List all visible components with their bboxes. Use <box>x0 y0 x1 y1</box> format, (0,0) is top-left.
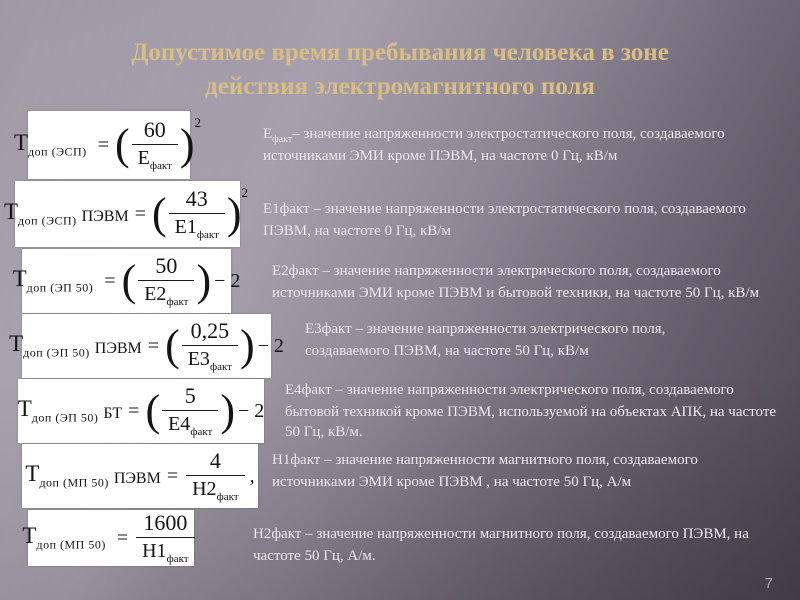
description-text: – значение напряженности электрического … <box>285 382 776 440</box>
description-e2-fact: Е2факт – значение напряженности электрич… <box>272 261 780 303</box>
formula-tail: − 2 <box>214 270 240 293</box>
description-term-subscript: факт <box>272 134 292 145</box>
formula-symbol: T <box>25 461 39 486</box>
denominator-subscript: факт <box>210 361 232 373</box>
fraction-denominator: Ефакт <box>132 144 178 173</box>
formula-suffix: ПЭВМ <box>82 208 129 225</box>
formula-lhs: Tдоп (ЭСП) <box>14 130 92 160</box>
fraction-denominator: Е2факт <box>138 280 194 309</box>
formula-subscript: доп (ЭП 50) <box>23 346 90 360</box>
fraction: 43 Е1факт <box>169 187 225 242</box>
description-e-fact: Ефакт– значение напряженности электроста… <box>263 124 768 166</box>
formula-box-ep50: Tдоп (ЭП 50) = ( 50 Е2факт ) − 2 <box>22 249 231 313</box>
description-term: Е3факт <box>305 321 352 337</box>
formula-lhs: Tдоп (ЭП 50)ПЭВМ <box>9 331 142 361</box>
formula-box-esp: Tдоп (ЭСП) = ( 60 Ефакт ) 2 <box>28 111 190 179</box>
formula-symbol: T <box>18 396 32 421</box>
formula-suffix: ПЭВМ <box>95 340 142 357</box>
formula-tail: , <box>250 465 255 488</box>
formula-subscript: доп (ЭП 50) <box>32 411 99 425</box>
description-text: – значение напряженности электрического … <box>305 321 665 359</box>
formula-lhs: Tдоп (ЭП 50)БТ <box>18 396 122 426</box>
left-paren: ( <box>165 326 180 366</box>
fraction-denominator: Е1факт <box>169 213 225 242</box>
left-paren: ( <box>152 194 167 234</box>
fraction-numerator: 0,25 <box>185 319 236 345</box>
denominator-subscript: факт <box>166 296 188 308</box>
fraction: 60 Ефакт <box>132 118 178 173</box>
formula-subscript: доп (ЭП 50) <box>27 281 94 295</box>
description-term: Е2факт <box>272 263 319 279</box>
description-term: Н1факт <box>272 452 320 468</box>
description-text: – значение напряженности электрического … <box>272 263 759 301</box>
formula-box-ep50-pevm: Tдоп (ЭП 50)ПЭВМ = ( 0,25 Е3факт ) − 2 <box>22 314 271 378</box>
denominator-symbol: Е1 <box>175 216 197 238</box>
left-paren: ( <box>145 391 160 431</box>
slide-title-line-1: Допустимое время пребывания человека в з… <box>20 36 780 70</box>
description-e1-fact: Е1факт – значение напряженности электрос… <box>263 199 778 241</box>
formula-box-mp50-pevm: Tдоп (МП 50)ПЭВМ = 4 Н2факт , <box>22 444 258 508</box>
denominator-subscript: факт <box>217 491 239 503</box>
fraction-numerator: 60 <box>138 118 172 144</box>
denominator-subscript: факт <box>150 160 172 172</box>
description-text: – значение напряженности электростатичес… <box>263 201 746 239</box>
right-paren: ) <box>240 326 255 366</box>
right-paren: ) <box>227 194 242 234</box>
equals-sign: = <box>135 203 146 226</box>
denominator-symbol: Н1 <box>142 540 166 562</box>
slide-title-line-2: действия электромагнитного поля <box>20 70 780 104</box>
denominator-symbol: Н2 <box>192 478 216 500</box>
fraction-denominator: Н1факт <box>136 537 194 566</box>
fraction: 1600 Н1факт <box>136 511 194 566</box>
formula-subscript: доп (МП 50) <box>36 538 105 552</box>
equals-sign: = <box>148 335 159 358</box>
equals-sign: = <box>128 400 139 423</box>
denominator-symbol: Е <box>138 147 150 169</box>
formula-lhs: Tдоп (ЭСП)ПЭВМ <box>4 199 129 229</box>
formula-suffix: БТ <box>103 405 122 422</box>
fraction-numerator: 1600 <box>137 511 193 537</box>
fraction-denominator: Е4факт <box>162 410 218 439</box>
formula-symbol: T <box>14 130 28 155</box>
formula-subscript: доп (МП 50) <box>39 476 108 490</box>
right-paren: ) <box>220 391 235 431</box>
exponent: 2 <box>242 185 249 201</box>
fraction-numerator: 4 <box>204 449 227 475</box>
page-number: 7 <box>765 575 773 592</box>
description-term: Е4факт <box>285 382 332 398</box>
formula-tail: − 2 <box>258 335 284 358</box>
left-paren: ( <box>115 125 130 165</box>
formula-box-esp-pevm: Tдоп (ЭСП)ПЭВМ = ( 43 Е1факт ) 2 <box>15 181 240 247</box>
fraction: 0,25 Е3факт <box>182 319 238 374</box>
slide-title: Допустимое время пребывания человека в з… <box>20 36 780 103</box>
formula-suffix: ПЭВМ <box>114 470 161 487</box>
description-text: – значение напряженности магнитного поля… <box>253 526 749 564</box>
fraction-numerator: 43 <box>180 187 214 213</box>
denominator-subscript: факт <box>167 553 189 565</box>
denominator-subscript: факт <box>190 426 212 438</box>
exponent: 2 <box>195 115 202 131</box>
denominator-symbol: Е4 <box>168 413 190 435</box>
description-term: Е1факт <box>263 201 310 217</box>
fraction-denominator: Н2факт <box>186 475 244 504</box>
description-term: Н2факт <box>253 526 301 542</box>
left-paren: ( <box>122 261 137 301</box>
fraction: 4 Н2факт <box>186 449 244 504</box>
denominator-symbol: Е3 <box>188 348 210 370</box>
presentation-slide: Допустимое время пребывания человека в з… <box>0 0 800 600</box>
equals-sign: = <box>167 465 178 488</box>
formula-box-ep50-bt: Tдоп (ЭП 50)БТ = ( 5 Е4факт ) − 2 <box>18 379 264 443</box>
formula-lhs: Tдоп (МП 50)ПЭВМ <box>25 461 160 491</box>
description-term: Е <box>263 126 272 142</box>
formula-symbol: T <box>22 523 36 548</box>
formula-tail: − 2 <box>238 400 264 423</box>
description-text: – значение напряженности электростатичес… <box>263 126 725 164</box>
denominator-symbol: Е2 <box>144 283 166 305</box>
formula-symbol: T <box>9 331 23 356</box>
description-h1-fact: Н1факт – значение напряженности магнитно… <box>272 450 742 492</box>
formula-subscript: доп (ЭСП) <box>28 145 87 159</box>
fraction-numerator: 50 <box>149 254 183 280</box>
formula-subscript: доп (ЭСП) <box>18 214 77 228</box>
description-e3-fact: Е3факт – значение напряженности электрич… <box>305 319 750 361</box>
fraction: 50 Е2факт <box>138 254 194 309</box>
description-e4-fact: Е4факт – значение напряженности электрич… <box>285 380 777 443</box>
equals-sign: = <box>104 270 115 293</box>
equals-sign: = <box>117 527 128 550</box>
fraction-denominator: Е3факт <box>182 345 238 374</box>
right-paren: ) <box>196 261 211 301</box>
description-text: – значение напряженности магнитного поля… <box>272 452 698 490</box>
formula-lhs: Tдоп (МП 50) <box>22 523 110 553</box>
fraction: 5 Е4факт <box>162 384 218 439</box>
formula-lhs: Tдоп (ЭП 50) <box>13 266 99 296</box>
formula-symbol: T <box>13 266 27 291</box>
right-paren: ) <box>180 125 195 165</box>
formula-box-mp50: Tдоп (МП 50) = 1600 Н1факт <box>28 510 194 566</box>
formula-symbol: T <box>4 199 18 224</box>
fraction-numerator: 5 <box>179 384 202 410</box>
description-h2-fact: Н2факт – значение напряженности магнитно… <box>253 524 778 566</box>
denominator-subscript: факт <box>197 229 219 241</box>
equals-sign: = <box>98 134 109 157</box>
